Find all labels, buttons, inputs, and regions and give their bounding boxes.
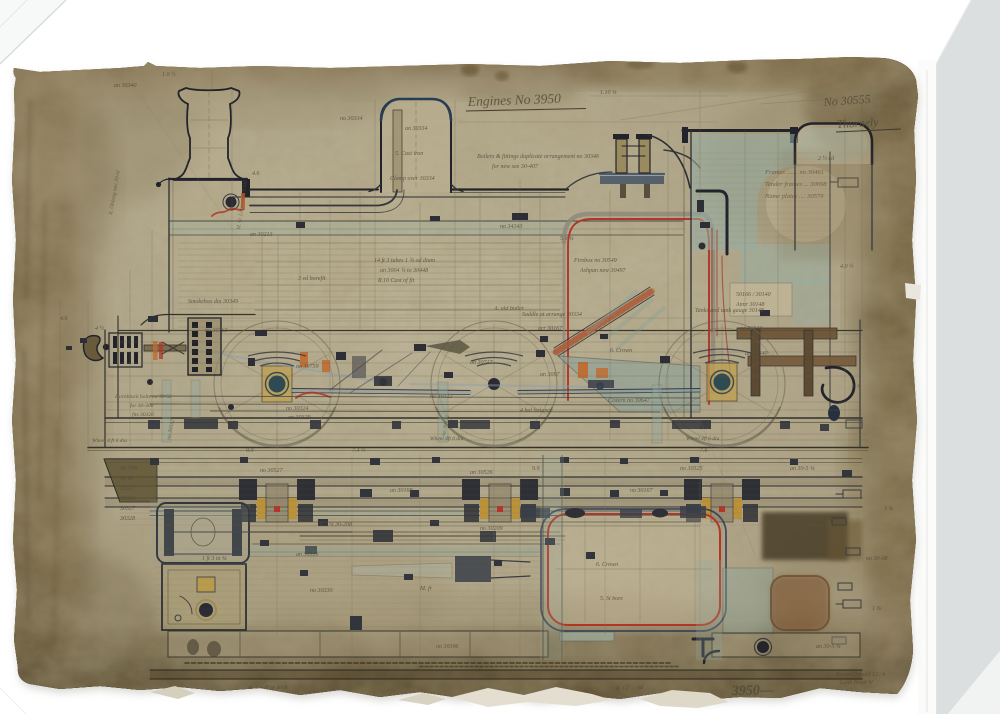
svg-text:an 30326: an 30326 [296, 552, 319, 558]
svg-text:30327: 30327 [119, 506, 136, 512]
svg-text:6.2 ¼ 30-208: 6.2 ¼ 30-208 [320, 522, 352, 528]
svg-text:for 30-300: for 30-300 [130, 402, 154, 409]
svg-text:an 30340: an 30340 [745, 350, 768, 357]
svg-text:4.6: 4.6 [252, 170, 260, 177]
svg-text:Wheel 4 ft 6 dia: Wheel 4 ft 6 dia [92, 437, 127, 444]
svg-text:no 30167: no 30167 [630, 488, 654, 494]
svg-text:6. Crown: 6. Crown [596, 562, 618, 568]
svg-text:Ashpan new 30497: Ashpan new 30497 [579, 267, 627, 274]
svg-text:no 34343: no 34343 [500, 223, 523, 230]
svg-text:Clamp over 30334: Clamp over 30334 [390, 175, 435, 182]
svg-text:5. Cast iron: 5. Cast iron [395, 151, 423, 157]
svg-text:4 bal balance: 4 bal balance [520, 407, 553, 414]
svg-text:Hornblock bolts no 30-52: Hornblock bolts no 30-52 [114, 394, 172, 400]
svg-text:Smokebox dia 30349: Smokebox dia 30349 [188, 298, 238, 305]
svg-text:14 ft 3 tubes 1 ¾ od diam: 14 ft 3 tubes 1 ¾ od diam [374, 257, 436, 264]
svg-text:Thornely: Thornely [837, 117, 880, 131]
svg-text:an 30329: an 30329 [288, 415, 311, 421]
svg-text:M. fr: M. fr [419, 585, 433, 592]
svg-text:no 30330: no 30330 [310, 588, 333, 594]
svg-text:no 30209: no 30209 [480, 526, 503, 532]
svg-text:an 30526: an 30526 [470, 470, 493, 476]
svg-text:A. old boiler: A. old boiler [493, 306, 525, 312]
svg-text:R. Gf — nd: R. Gf — nd [615, 684, 644, 692]
svg-text:1 ¾: 1 ¾ [852, 384, 862, 390]
svg-text:arr 30167: arr 30167 [538, 326, 563, 332]
svg-text:an 3097: an 3097 [540, 372, 561, 378]
svg-text:no 30396: no 30396 [436, 644, 459, 650]
svg-text:4.0 ½: 4.0 ½ [840, 263, 854, 270]
svg-text:an 3004 ¾ to 30448: an 3004 ¾ to 30448 [380, 267, 428, 274]
svg-text:an 30-5 ¾: an 30-5 ¾ [816, 644, 841, 650]
svg-text:no 30-08: no 30-08 [866, 556, 888, 562]
svg-text:9.9: 9.9 [532, 466, 540, 472]
svg-text:3 ⅝: 3 ⅝ [883, 506, 894, 512]
svg-text:no 30525: no 30525 [680, 466, 703, 472]
svg-text:Wheel 4ft 6 dia: Wheel 4ft 6 dia [686, 435, 720, 442]
svg-text:no 30759: no 30759 [296, 364, 319, 370]
svg-text:R.10 Cast of fit: R.10 Cast of fit [377, 277, 415, 284]
svg-text:50166 / 30140: 50166 / 30140 [736, 291, 771, 298]
svg-text:no 30763: no 30763 [205, 328, 228, 334]
svg-text:7.4 ½: 7.4 ½ [352, 447, 366, 454]
svg-text:fits 30326: fits 30326 [132, 411, 154, 418]
svg-text:Tanks and tank gauge 30148: Tanks and tank gauge 30148 [695, 307, 764, 314]
svg-text:no 30324: no 30324 [286, 405, 309, 412]
svg-text:Saddle at arrange 30334: Saddle at arrange 30334 [522, 311, 582, 318]
svg-text:an 30-5 ¾: an 30-5 ¾ [790, 466, 815, 472]
svg-text:Firebox no 30549: Firebox no 30549 [573, 257, 617, 264]
svg-text:an 30334: an 30334 [405, 125, 428, 132]
svg-text:for new see 30-407: for new see 30-407 [492, 163, 539, 170]
svg-text:30 86: 30 86 [119, 476, 134, 482]
svg-text:6. Crown: 6. Crown [610, 348, 632, 354]
svg-text:4 ½: 4 ½ [95, 325, 105, 332]
svg-text:3950—: 3950— [731, 683, 774, 699]
svg-text:Bevan Donald 12 ⁄ 4: Bevan Donald 12 ⁄ 4 [836, 671, 885, 678]
svg-text:an 30213: an 30213 [250, 232, 273, 238]
svg-text:3 vd borefit: 3 vd borefit [297, 275, 326, 282]
svg-text:Leith Road W: Leith Road W [839, 680, 874, 686]
svg-text:1.0 ½: 1.0 ½ [162, 71, 176, 78]
svg-text:no 30322: no 30322 [430, 394, 453, 400]
svg-text:no 30334: no 30334 [340, 115, 363, 122]
svg-text:30328: 30328 [119, 516, 135, 522]
svg-text:5.0 ¾: 5.0 ¾ [560, 236, 574, 242]
svg-text:5. St bore: 5. St bore [600, 596, 623, 602]
svg-text:30312: 30312 [119, 486, 135, 492]
svg-text:an 30747: an 30747 [470, 359, 494, 366]
svg-text:1.10 ¾: 1.10 ¾ [600, 90, 617, 96]
svg-text:7.6: 7.6 [700, 448, 708, 454]
svg-text:no 30527: no 30527 [260, 468, 284, 474]
svg-text:Boilers & fittings duplicate a: Boilers & fittings duplicate arrangement… [477, 153, 599, 160]
svg-text:an 30340: an 30340 [114, 82, 137, 89]
svg-text:4.6: 4.6 [60, 315, 68, 322]
svg-text:30326: 30326 [119, 496, 135, 502]
svg-text:an 30168: an 30168 [390, 488, 413, 494]
svg-text:no 30540: no 30540 [740, 325, 763, 332]
svg-text:Cistern no 30647: Cistern no 30647 [608, 397, 651, 404]
svg-text:30 79N: 30 79N [119, 466, 139, 472]
svg-text:1 ⅝: 1 ⅝ [872, 606, 882, 612]
svg-text:1 ft 3 in ⅝: 1 ft 3 in ⅝ [202, 555, 227, 562]
svg-text:Annr 30148: Annr 30148 [735, 301, 765, 308]
svg-text:9.9: 9.9 [246, 448, 254, 454]
